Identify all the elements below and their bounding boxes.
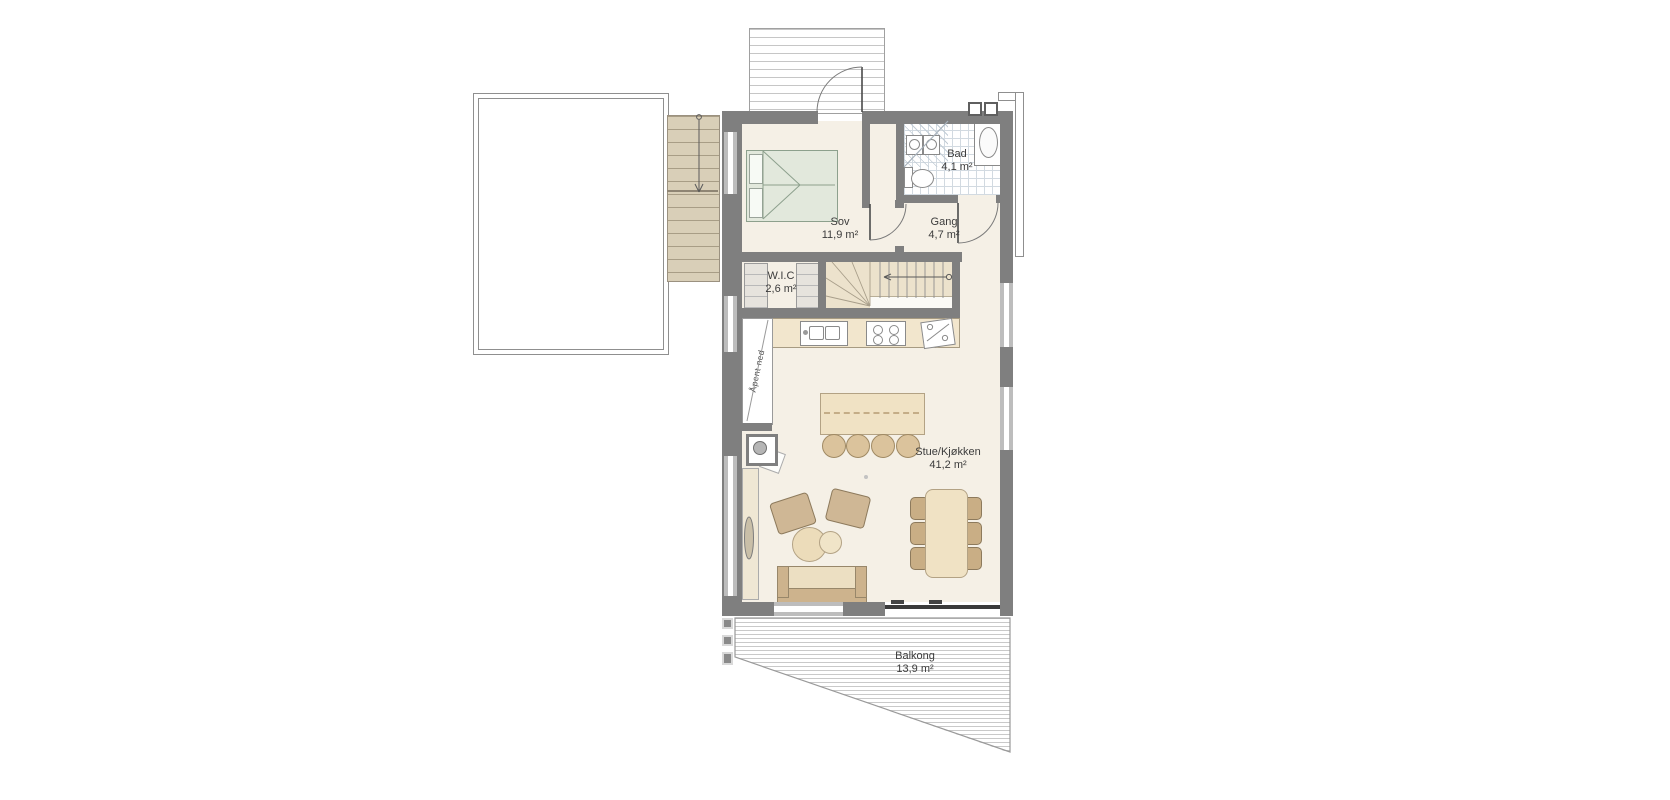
sofa-armrest <box>777 566 789 598</box>
balcony-post <box>722 652 733 665</box>
room-area: 11,9 m² <box>822 229 858 242</box>
room-area: 4,7 m² <box>928 229 959 242</box>
toilet-icon <box>911 169 934 188</box>
kitchen-island-divider <box>824 412 919 414</box>
tv-bench <box>742 468 759 600</box>
wall-gang-south <box>742 252 962 262</box>
vent-notch <box>968 102 982 116</box>
label-stue: Stue/Kjøkken 41,2 m² <box>915 446 980 472</box>
wall-bad-south-b <box>996 195 1013 203</box>
dishwasher-icon <box>920 318 955 349</box>
sink-bowl <box>825 326 840 340</box>
label-wic: W.I.C 2,6 m² <box>765 270 796 296</box>
room-name: Stue/Kjøkken <box>915 446 980 459</box>
window-east-lower <box>1000 387 1013 450</box>
dryer-icon <box>923 135 940 155</box>
balcony-deck <box>735 618 1010 753</box>
wardrobe-icon <box>796 263 820 310</box>
sliding-door-handle <box>929 600 942 604</box>
burner <box>873 335 883 345</box>
coffee-table-icon <box>819 531 842 554</box>
fireplace-icon <box>746 434 778 466</box>
fireplace-flue <box>753 441 767 455</box>
wall-bad-west <box>896 121 904 195</box>
sink-bowl <box>809 326 824 340</box>
dryer-drum <box>926 139 937 150</box>
floor-dot <box>864 475 868 479</box>
bar-stool-icon <box>822 434 846 458</box>
garage-inner-outline <box>478 98 664 350</box>
void-bottom-wall <box>742 423 772 431</box>
label-gang: Gang 4,7 m² <box>928 216 959 242</box>
garage-outline <box>473 93 669 355</box>
wall-bottom-a <box>722 602 774 616</box>
room-name: W.I.C <box>765 270 796 283</box>
sink-vanity-icon <box>974 118 1002 166</box>
exterior-stairs-landing-edge <box>667 190 718 192</box>
room-name: Balkong <box>895 650 935 663</box>
sofa-icon <box>777 566 865 601</box>
exterior-stairs <box>667 115 720 282</box>
wardrobe-icon <box>744 263 768 310</box>
faucet-icon <box>803 330 808 335</box>
room-area: 41,2 m² <box>915 459 980 472</box>
room-name: Sov <box>822 216 858 229</box>
wall-stub-gang <box>895 246 904 260</box>
room-name: Bad <box>941 148 972 161</box>
vent-notch <box>984 102 998 116</box>
basin <box>979 127 998 158</box>
cladding-offset-east <box>1015 92 1024 257</box>
wall-east <box>1000 111 1013 616</box>
wall-kitchen-north <box>742 308 960 318</box>
bed-pillow <box>749 154 763 184</box>
wall-stairs-east <box>952 262 960 308</box>
window-west-bedroom <box>724 132 737 194</box>
room-name: Gang <box>928 216 959 229</box>
burner <box>889 335 899 345</box>
sofa-back <box>777 588 867 603</box>
sliding-door-glass <box>885 605 1000 609</box>
label-sov: Sov 11,9 m² <box>822 216 858 242</box>
window-west-kitchen <box>724 296 737 352</box>
bed-pillow <box>749 188 763 218</box>
dining-table <box>925 489 968 578</box>
wall-bottom-b <box>843 602 885 616</box>
wall-bad-south-a <box>896 195 958 203</box>
bar-stool-icon <box>846 434 870 458</box>
wall-wic-east <box>818 262 826 308</box>
label-bad: Bad 4,1 m² <box>941 148 972 174</box>
wall-sov-east <box>862 121 870 208</box>
room-area: 13,9 m² <box>895 663 935 676</box>
burner <box>889 325 899 335</box>
cooktop-icon <box>866 321 906 346</box>
window-west-living <box>724 456 737 596</box>
sliding-door-handle <box>891 600 904 604</box>
bar-stool-icon <box>871 434 895 458</box>
kitchen-sink-icon <box>800 321 848 346</box>
balcony-post <box>722 635 733 646</box>
room-area: 4,1 m² <box>941 161 972 174</box>
washing-machine-icon <box>906 135 923 155</box>
washer-drum <box>909 139 920 150</box>
floor-plan: Åpent ned <box>0 0 1670 800</box>
label-balkong: Balkong 13,9 m² <box>895 650 935 676</box>
window-east-upper <box>1000 283 1013 347</box>
entrance-deck <box>749 28 885 114</box>
window-south-living <box>774 602 843 616</box>
burner <box>873 325 883 335</box>
balcony-post <box>722 618 733 629</box>
room-area: 2,6 m² <box>765 283 796 296</box>
sofa-armrest <box>855 566 867 598</box>
kitchen-island <box>820 393 925 435</box>
